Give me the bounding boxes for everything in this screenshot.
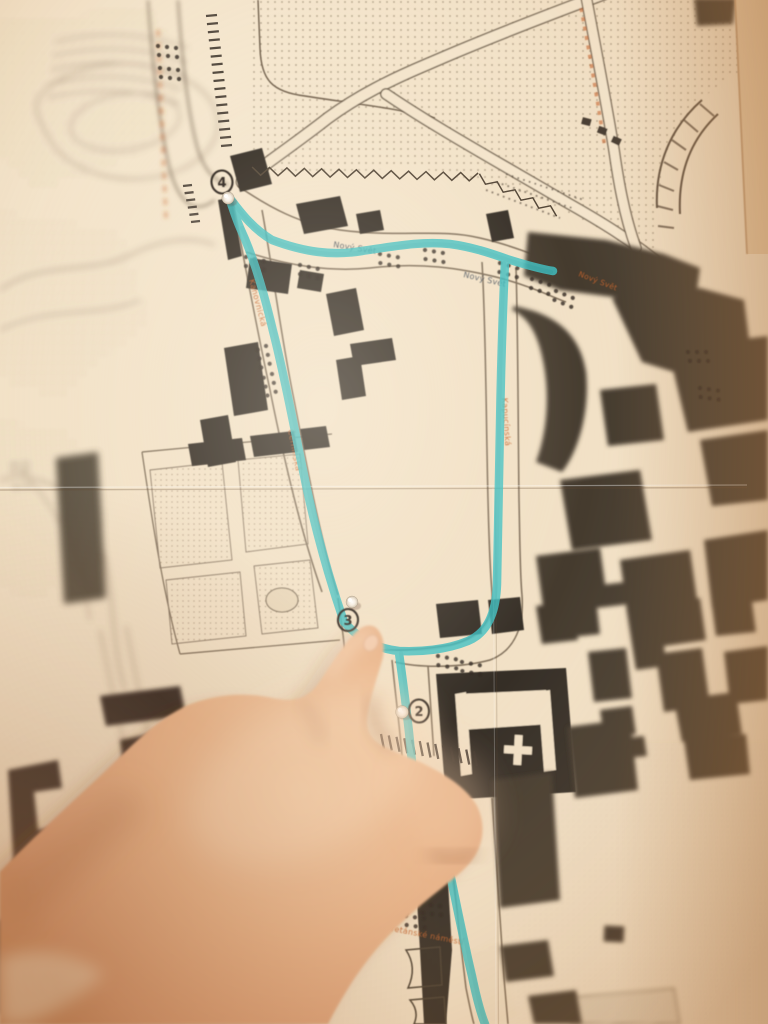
map-photo-svg: Nový Svět Nový Svět Nový Svět Kanovnická… bbox=[0, 0, 768, 1024]
lighting-overlays bbox=[0, 0, 768, 1024]
photo-hand-pointing-at-map: Nový Svět Nový Svět Nový Svět Kanovnická… bbox=[0, 0, 768, 1024]
